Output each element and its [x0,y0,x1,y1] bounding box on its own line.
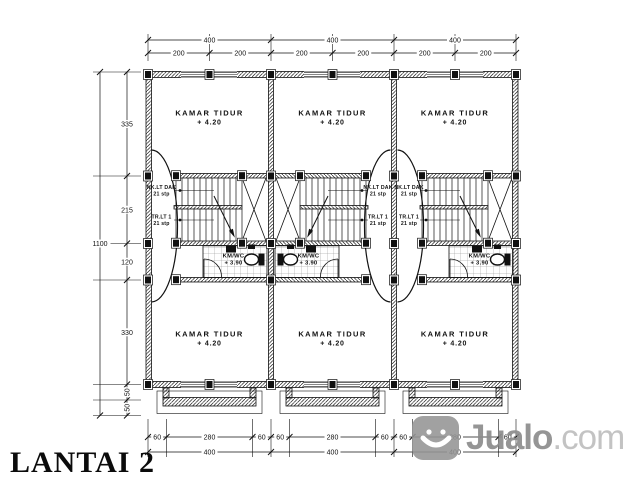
bathroom-label: KM/WC [298,254,320,260]
room-level: + 4.20 [320,341,344,348]
bathroom-level: + 3.90 [224,261,242,267]
floorplan-page: KAMAR TIDUR + 4.20 KAMAR TIDUR + 4.20 KA… [0,0,625,500]
room-label: KAMAR TIDUR [298,330,366,339]
dimension-label: 400 [327,450,339,457]
jualo-watermark: Jualo .com [412,416,624,460]
stair-up-steps: 21 stp [153,192,169,198]
stair-down-note: TR.LT 1 [151,215,171,221]
room-labels-layer: KAMAR TIDUR + 4.20 KAMAR TIDUR + 4.20 KA… [147,109,491,348]
stair-up-steps: 21 stp [370,192,386,198]
bathroom-level: + 3.90 [470,261,488,267]
dimension-label: 400 [204,450,216,457]
dimension-label: 200 [480,51,492,58]
room-label: KAMAR TIDUR [175,109,243,118]
smiley-icon [412,416,459,460]
dimension-label: 280 [204,435,216,442]
dimension-label: 60 [276,435,284,442]
dimension-label: 200 [173,51,185,58]
dimension-label: 60 [381,435,389,442]
dimension-label: 200 [234,51,246,58]
dimension-label: 400 [449,38,461,45]
dimension-label: 200 [419,51,431,58]
dimension-label: 60 [258,435,266,442]
page-title: LANTAI 2 [10,446,155,480]
room-label: KAMAR TIDUR [421,330,489,339]
dimension-label: 1100 [92,241,107,248]
watermark-text: Jualo .com [466,418,624,458]
stair-up-note: NK.LT DAK [394,185,423,191]
dimension-label: 120 [121,259,133,266]
room-level: + 4.20 [320,120,344,127]
dimension-label: 280 [327,435,339,442]
room-label: KAMAR TIDUR [421,109,489,118]
stair-down-steps: 21 stp [370,221,386,227]
stair-up-note: NK.LT DAK [147,185,176,191]
room-label: KAMAR TIDUR [298,109,366,118]
room-level: + 4.20 [197,341,221,348]
dimension-label: 60 [399,435,407,442]
watermark-suffix: .com [552,418,624,458]
bathroom-label: KM/WC [223,254,245,260]
stair-down-note: TR.LT 1 [368,215,388,221]
dimension-label: 215 [121,207,133,214]
room-level: + 4.20 [443,120,467,127]
stair-up-note: NK.LT DAK [363,185,392,191]
dimension-label: 200 [357,51,369,58]
stair-up-steps: 21 stp [401,192,417,198]
stair-down-steps: 21 stp [153,221,169,227]
bathroom-label: KM/WC [469,254,491,260]
dimension-label: 400 [204,38,216,45]
dimension-label: 400 [327,38,339,45]
room-level: + 4.20 [197,120,221,127]
watermark-brand: Jualo [466,418,552,458]
room-label: KAMAR TIDUR [175,330,243,339]
bathroom-level: + 3.90 [299,261,317,267]
dimension-label: 50 [125,388,132,396]
dimension-label: 335 [121,122,133,129]
dimension-label: 60 [153,435,161,442]
room-level: + 4.20 [443,341,467,348]
dimension-label: 50 [125,404,132,412]
dimension-label: 330 [121,330,133,337]
stair-down-note: TR.LT 1 [399,215,419,221]
stair-down-steps: 21 stp [401,221,417,227]
dimension-label: 200 [296,51,308,58]
